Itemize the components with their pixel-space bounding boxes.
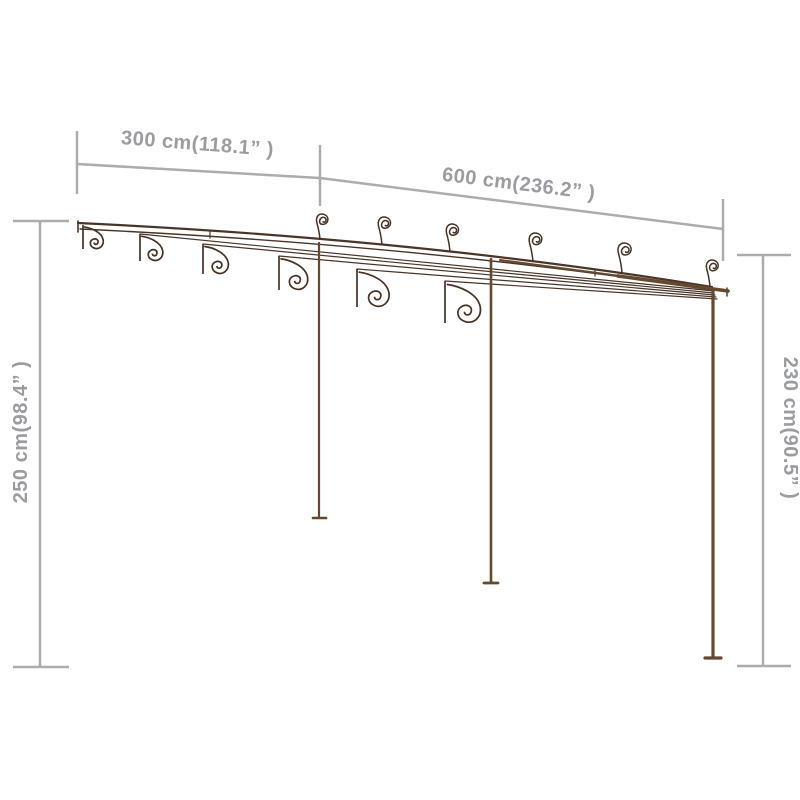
roof-rails xyxy=(78,221,717,299)
product-dimension-diagram: 300 cm(118.1” ) 600 cm(236.2” ) 250 cm(9… xyxy=(0,0,800,800)
dim-300-label: 300 cm(118.1” ) xyxy=(120,127,274,161)
wall-bracket-4 xyxy=(279,256,308,290)
top-scroll-5 xyxy=(618,243,631,273)
front-beam-far xyxy=(500,260,620,276)
dim-300-line xyxy=(77,164,320,178)
dim-600-label: 600 cm(236.2” ) xyxy=(441,164,597,205)
wall-bracket-2 xyxy=(140,234,163,261)
wall-bracket-5 xyxy=(357,269,389,307)
top-scrolls xyxy=(317,214,719,287)
wall-bracket-6 xyxy=(445,281,480,323)
top-scroll-3 xyxy=(446,224,458,252)
pergola-diagram-svg: 300 cm(118.1” ) 600 cm(236.2” ) 250 cm(9… xyxy=(0,0,800,800)
dim-230-label: 230 cm(90.5” ) xyxy=(779,357,800,500)
dim-250-label: 250 cm(98.4” ) xyxy=(10,361,32,504)
dimension-labels: 300 cm(118.1” ) 600 cm(236.2” ) 250 cm(9… xyxy=(10,127,800,503)
top-scroll-4 xyxy=(529,233,542,262)
wall-bracket-3 xyxy=(203,244,228,274)
dimension-annotations xyxy=(13,131,791,667)
top-scroll-2 xyxy=(378,217,390,245)
top-scroll-6 xyxy=(706,260,718,287)
roof-rafter-1 xyxy=(140,234,714,291)
top-scroll-1 xyxy=(317,214,328,240)
